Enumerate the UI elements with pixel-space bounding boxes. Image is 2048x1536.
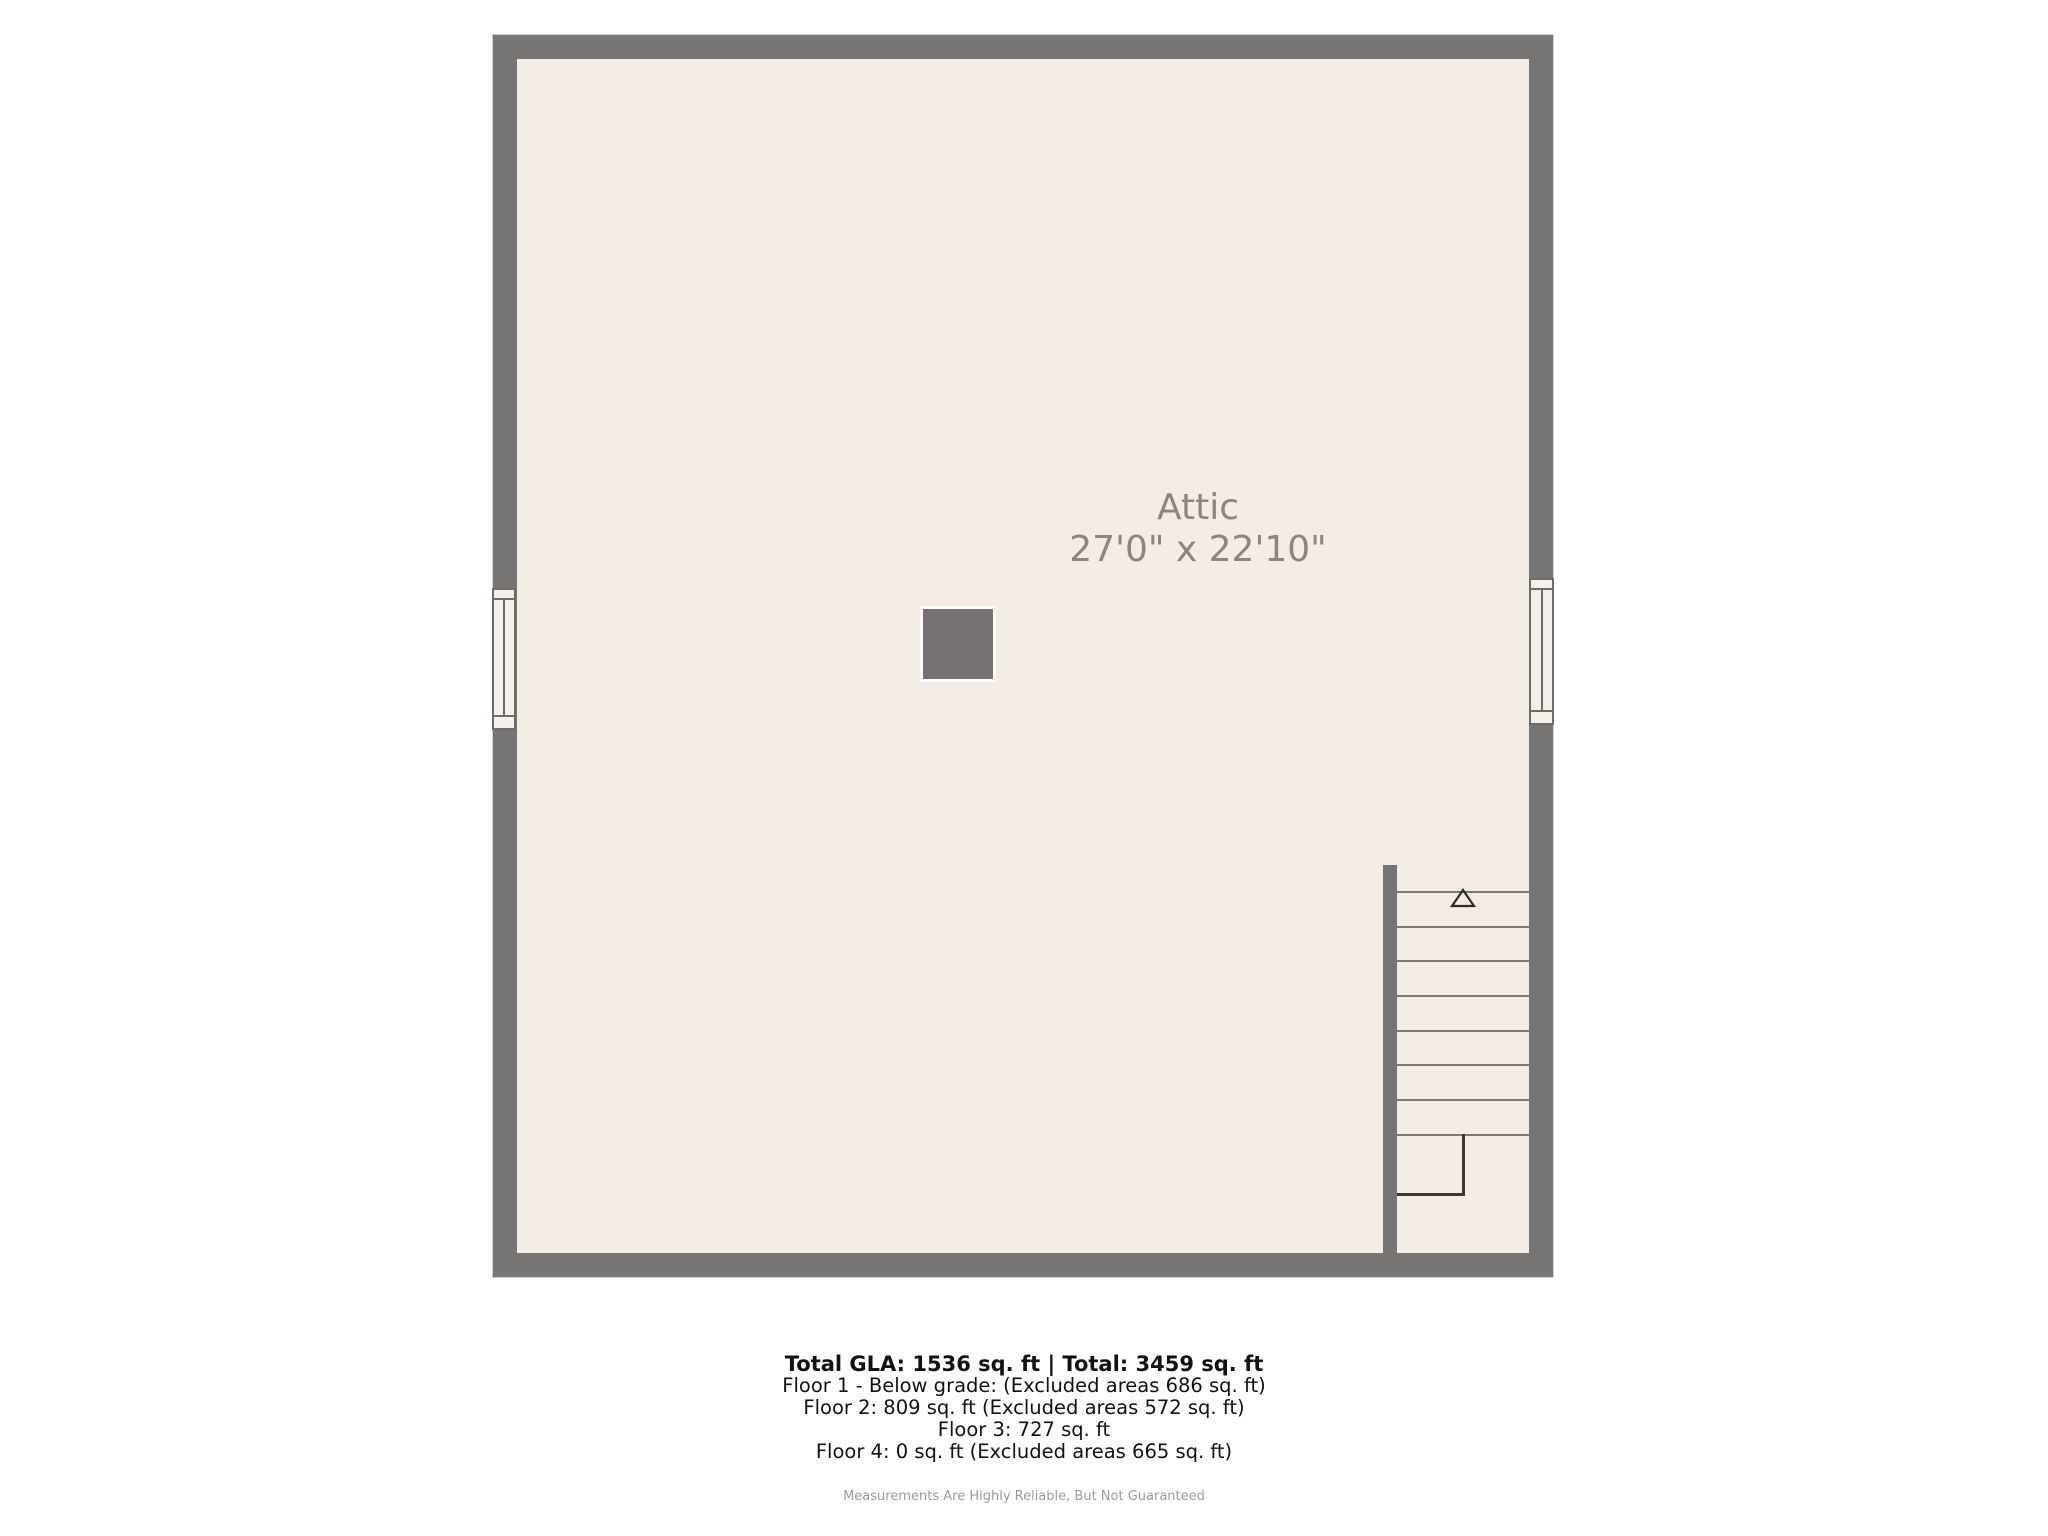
window-mullion-icon [503,600,505,715]
stair-tread [1397,960,1529,962]
stair-tread [1397,995,1529,997]
stair-tread [1397,1099,1529,1101]
room-label-block: Attic 27'0" x 22'10" [948,487,1448,571]
attic-room [517,59,1529,1253]
up-arrow-icon [1450,888,1476,908]
stair-tread [1397,1030,1529,1032]
chimney [920,606,996,682]
window-mullion-icon [1541,590,1543,710]
measurement-summary: Total GLA: 1536 sq. ft | Total: 3459 sq.… [0,1353,2048,1508]
floor-line: Floor 4: 0 sq. ft (Excluded areas 665 sq… [0,1441,2048,1463]
floor-line: Floor 3: 727 sq. ft [0,1419,2048,1441]
floor-plan: Attic 27'0" x 22'10" [493,35,1553,1277]
floor-line: Floor 2: 809 sq. ft (Excluded areas 572 … [0,1397,2048,1419]
staircase [1397,891,1529,1137]
total-gla-line: Total GLA: 1536 sq. ft | Total: 3459 sq.… [0,1353,2048,1375]
disclaimer: Measurements Are Highly Reliable, But No… [0,1486,2048,1508]
window-sill-icon [494,715,514,717]
stair-landing-line [1397,1193,1465,1196]
stair-landing-line [1462,1134,1465,1196]
stair-tread [1397,926,1529,928]
stair-tread [1397,1064,1529,1066]
window-left [492,588,516,730]
floor-line: Floor 1 - Below grade: (Excluded areas 6… [0,1375,2048,1397]
window-sill-icon [1531,710,1552,712]
stairwell-wall [1383,865,1397,1253]
room-name: Attic [948,487,1448,529]
window-right [1529,578,1554,725]
room-dimensions: 27'0" x 22'10" [948,529,1448,571]
